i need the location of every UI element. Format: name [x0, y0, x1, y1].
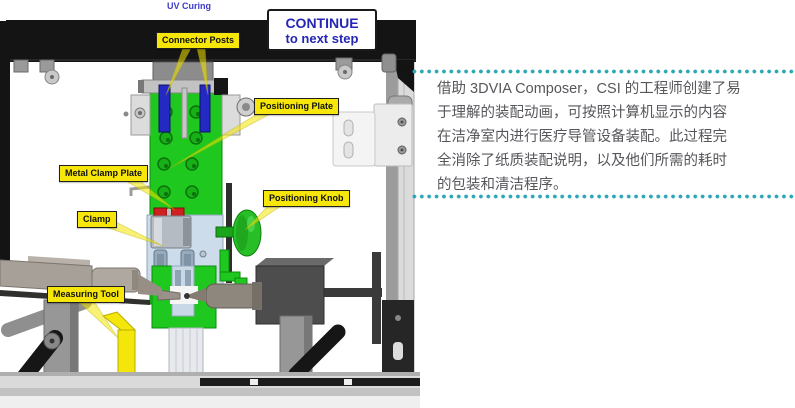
continue-button-line2: to next step: [286, 31, 359, 46]
dotted-separator-top: [412, 69, 795, 74]
bottom-rails: [0, 372, 420, 408]
dotted-separator-bottom: [412, 194, 795, 199]
callout-clamp: Clamp: [77, 211, 117, 228]
continue-button[interactable]: CONTINUE to next step: [267, 9, 377, 51]
bracket-plates: [333, 104, 412, 166]
callout-positioning-knob: Positioning Knob: [263, 190, 350, 207]
callout-metal-clamp-plate: Metal Clamp Plate: [59, 165, 148, 182]
page: UV Curing CONTINUE to next step Connecto…: [0, 0, 795, 408]
body-line: 借助 3DVIA Composer，CSI 的工程师创建了易: [437, 77, 767, 101]
machine-drawing: [0, 0, 420, 408]
body-paragraph: 借助 3DVIA Composer，CSI 的工程师创建了易 于理解的装配动画，…: [437, 77, 767, 197]
callout-connector-posts: Connector Posts: [156, 32, 240, 49]
body-line: 在洁净室内进行医疗导管设备装配。此过程完: [437, 125, 767, 149]
continue-button-line1: CONTINUE: [285, 15, 358, 31]
callout-measuring-tool: Measuring Tool: [47, 286, 125, 303]
body-line: 于理解的装配动画，可按照计算机显示的内容: [437, 101, 767, 125]
callout-positioning-plate: Positioning Plate: [254, 98, 339, 115]
station-title: UV Curing: [167, 1, 211, 11]
body-line: 全消除了纸质装配说明，以及他们所需的耗时: [437, 149, 767, 173]
assembly-illustration: UV Curing CONTINUE to next step Connecto…: [0, 0, 420, 408]
